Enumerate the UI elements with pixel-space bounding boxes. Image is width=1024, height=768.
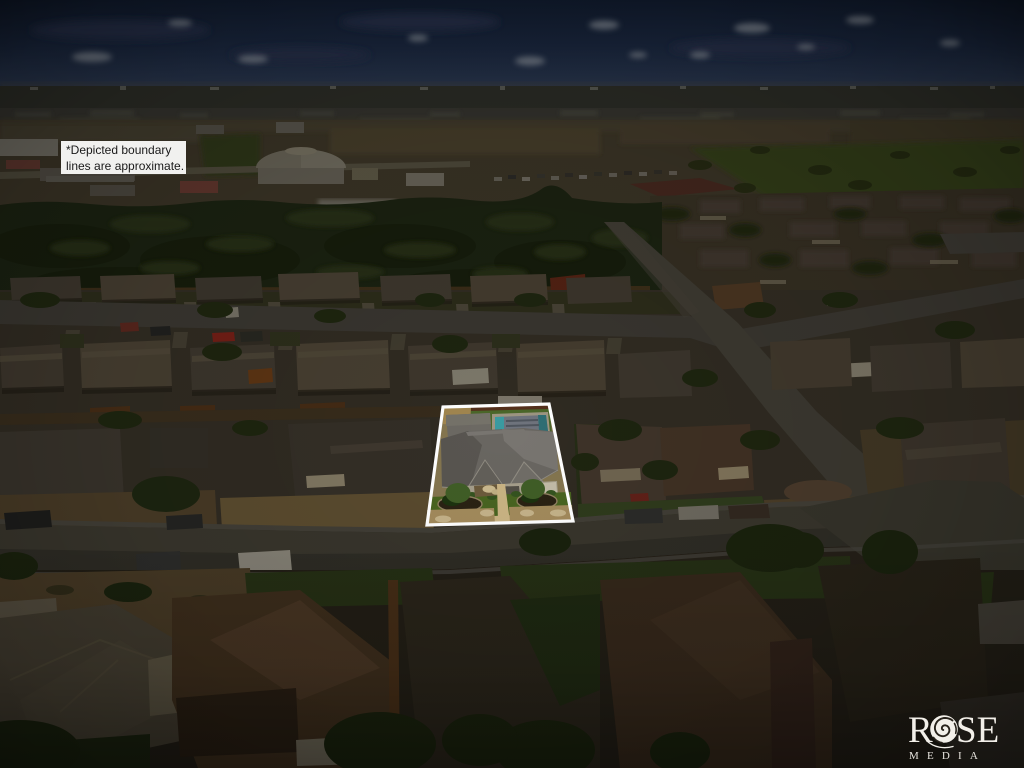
svg-text:SE: SE (956, 710, 999, 751)
svg-text:MEDIA: MEDIA (909, 750, 986, 762)
svg-text:R: R (908, 710, 933, 751)
